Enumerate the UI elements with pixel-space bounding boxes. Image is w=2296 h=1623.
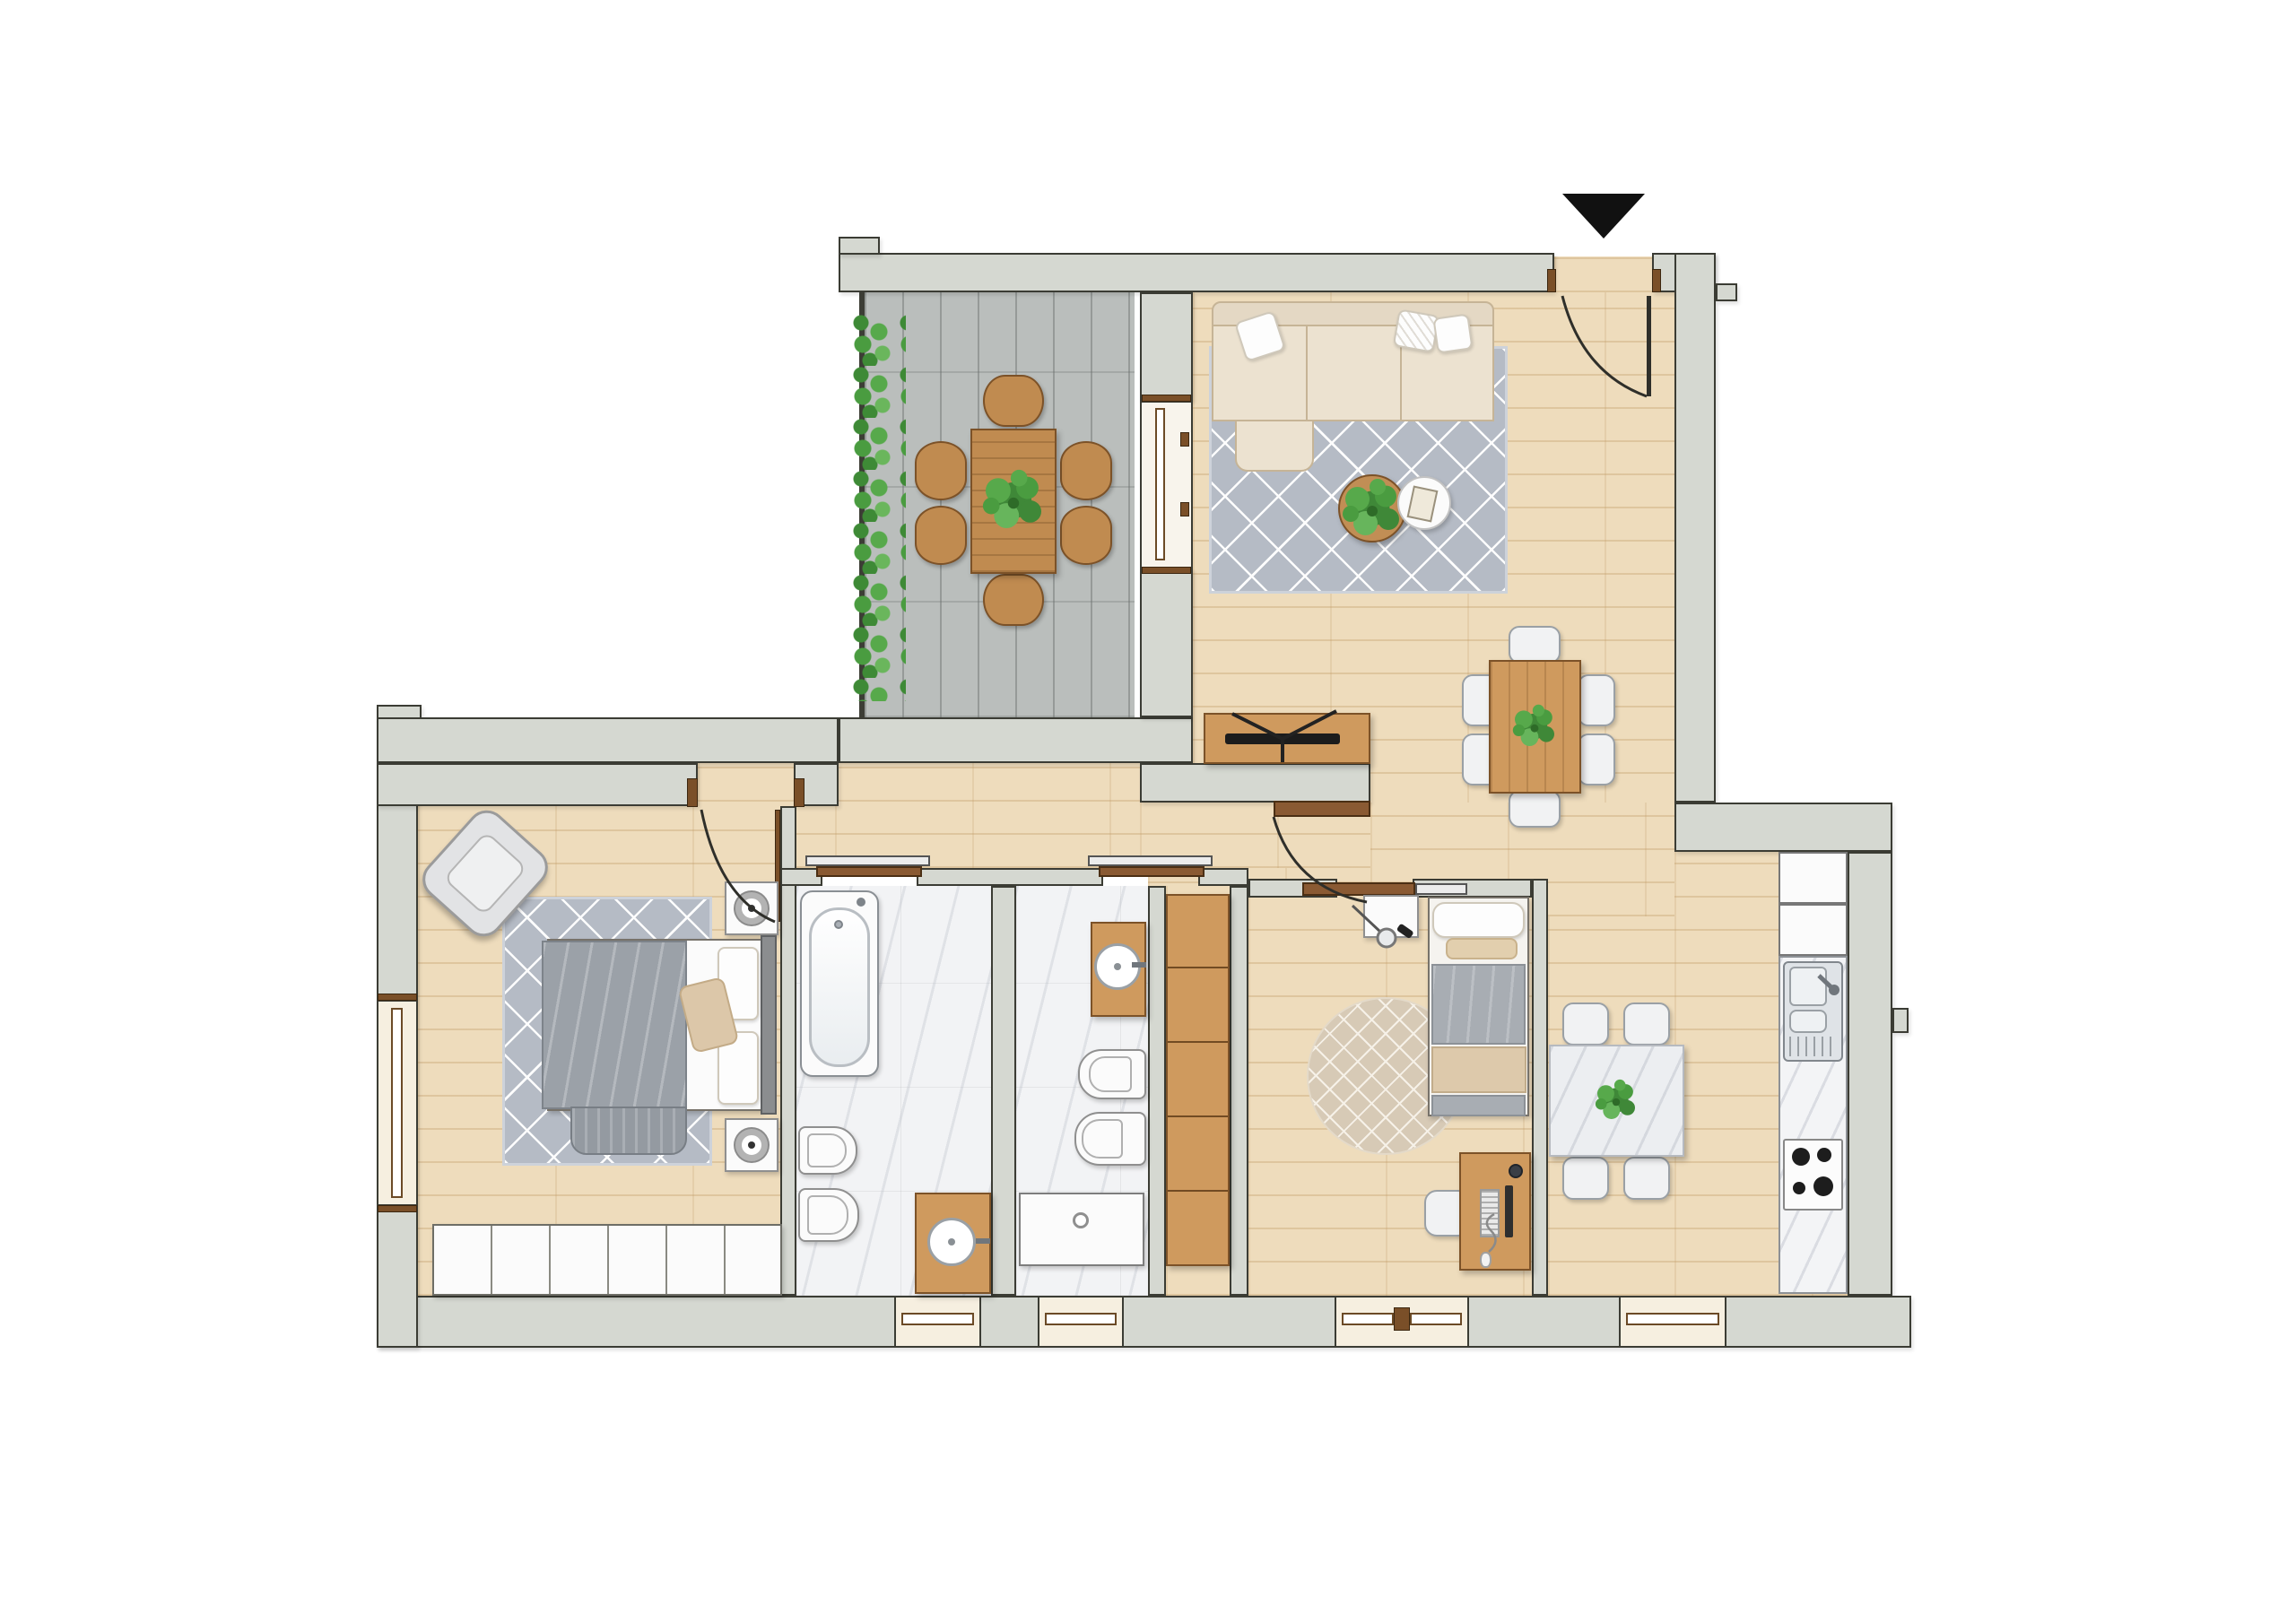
window-kids-glazing-right xyxy=(1410,1313,1462,1325)
kitchen-hob xyxy=(1783,1139,1843,1211)
bedroom-door-jamb-left xyxy=(687,778,698,807)
bed-headboard xyxy=(761,935,777,1115)
entrance-threshold-floor xyxy=(1554,256,1652,292)
kitchen-tall-cabinet-1 xyxy=(1779,852,1848,904)
terrace-chair-right-1 xyxy=(1060,441,1112,500)
wall-kids-east xyxy=(1532,879,1548,1296)
bathroom1-sliding-door xyxy=(816,866,922,877)
nightstand-top-lamp xyxy=(735,892,768,924)
hallway-door-open-leaf xyxy=(1274,801,1370,817)
hob-burner-2 xyxy=(1817,1148,1831,1162)
terrace-chair-top xyxy=(983,375,1044,427)
dining-table xyxy=(1489,660,1581,794)
terrace-chair-right-2 xyxy=(1060,506,1112,565)
terrace-sliding-door-jamb-top xyxy=(1142,395,1191,402)
wall-top-left-notch xyxy=(839,237,880,255)
wall-corridor-south-c xyxy=(1198,868,1248,886)
wall-step-kitchen-north xyxy=(1674,803,1892,852)
kitchen-chair-bottom-1 xyxy=(1562,1157,1609,1200)
bedroom-door-jamb-right xyxy=(794,778,804,807)
hallway-wardrobe xyxy=(1166,894,1230,1266)
kitchen-tall-cabinet-2 xyxy=(1779,904,1848,956)
bedroom-wardrobe xyxy=(432,1224,782,1296)
kids-bed-pillow xyxy=(1432,902,1525,938)
kids-bed-pillow-beige xyxy=(1446,938,1518,959)
window-bedroom-west-jamb-top xyxy=(378,994,417,1001)
terrace-chair-left-2 xyxy=(915,506,967,565)
dining-chair-right-2 xyxy=(1578,733,1615,785)
kitchen-chair-top-1 xyxy=(1562,1002,1609,1046)
terrace-sliding-door-handle-1 xyxy=(1180,432,1189,447)
nightstand-bottom-lamp xyxy=(735,1129,768,1161)
dining-chair-top xyxy=(1509,626,1561,664)
kids-room-door-track xyxy=(1415,883,1467,895)
entrance-arrow-icon xyxy=(1562,194,1645,239)
bathtub-drain xyxy=(834,920,843,929)
dining-chair-bottom xyxy=(1509,790,1561,828)
desk-chair xyxy=(1424,1190,1462,1237)
wall-top-terrace xyxy=(839,253,1554,292)
desk-mouse xyxy=(1480,1252,1492,1268)
coffee-table-round-wood xyxy=(1338,474,1406,542)
sofa-seam-1 xyxy=(1306,325,1308,421)
tv xyxy=(1225,733,1340,744)
entrance-door-jamb-left xyxy=(1547,269,1556,292)
wall-bathroom2-east xyxy=(1148,886,1166,1296)
bathroom1-door-track xyxy=(805,855,930,866)
kitchen-chair-bottom-2 xyxy=(1623,1157,1670,1200)
wall-pilaster-kitchen xyxy=(1892,1008,1909,1033)
entrance-door-panel xyxy=(1647,296,1651,396)
bed-blanket-drape xyxy=(570,1107,687,1155)
kitchen-sink-basin-large xyxy=(1789,967,1827,1006)
wall-pilaster-entrance xyxy=(1716,283,1737,301)
wall-bedroom-north-outer xyxy=(377,717,839,763)
bathroom2-door-track xyxy=(1088,855,1213,866)
window-bathroom2-glazing xyxy=(1045,1313,1117,1325)
desk-monitor xyxy=(1505,1185,1513,1237)
wall-kids-west xyxy=(1230,886,1248,1296)
bathroom2-bidet-bowl xyxy=(1089,1056,1132,1092)
wall-right-kitchen xyxy=(1848,852,1892,1296)
hob-burner-1 xyxy=(1792,1148,1810,1166)
hob-burner-3 xyxy=(1793,1182,1805,1194)
window-kids-glazing-left xyxy=(1342,1313,1394,1325)
wall-corridor-south-b xyxy=(917,868,1103,886)
kitchen-table-marble xyxy=(1549,1045,1684,1157)
hob-burner-4 xyxy=(1813,1176,1833,1196)
kids-bed-footer-gray xyxy=(1431,1095,1526,1116)
bed-blanket-gray xyxy=(542,941,687,1109)
washing-machine xyxy=(1019,1193,1144,1266)
window-kids-mullion xyxy=(1394,1307,1410,1331)
bathroom1-bidet-bowl xyxy=(807,1133,847,1167)
terrace-sliding-door-jamb-bottom xyxy=(1142,567,1191,574)
terrace-sliding-door-handle-2 xyxy=(1180,502,1189,516)
kitchen-sink-drainboard xyxy=(1789,1037,1834,1056)
entrance-door-jamb-right xyxy=(1652,269,1661,292)
terrace-chair-left-1 xyxy=(915,441,967,500)
kids-bed-blanket-beige xyxy=(1431,1046,1526,1093)
desk-speaker xyxy=(1509,1164,1523,1178)
terrace-sliding-door xyxy=(1140,401,1193,568)
bathroom2-toilet-bowl xyxy=(1082,1119,1123,1159)
sofa-pillow-3 xyxy=(1432,313,1473,353)
kitchen-sink-basin-small xyxy=(1789,1010,1827,1033)
floor-plan xyxy=(0,0,2296,1623)
desk-keyboard xyxy=(1480,1189,1500,1237)
window-bedroom-west-glazing xyxy=(391,1008,403,1198)
window-bathroom1-glazing xyxy=(901,1313,974,1325)
terrace-chair-bottom xyxy=(983,574,1044,626)
bathroom1-sink-drain xyxy=(948,1238,955,1245)
kids-nightstand xyxy=(1363,895,1419,938)
kids-room-sliding-door xyxy=(1302,882,1415,896)
wall-terrace-east-upper xyxy=(1140,292,1193,401)
window-bedroom-west-jamb-bottom xyxy=(378,1205,417,1212)
wall-bedroom-north-inner-west xyxy=(377,763,698,806)
wall-terrace-south xyxy=(839,717,1193,763)
hedge-plants xyxy=(850,314,906,701)
washing-machine-knob xyxy=(1073,1212,1089,1228)
terrace-dining-table xyxy=(970,429,1057,574)
kitchen-chair-top-2 xyxy=(1623,1002,1670,1046)
terrace-sliding-door-glazing xyxy=(1155,408,1165,560)
wall-right-living xyxy=(1674,253,1716,803)
wall-between-bathrooms xyxy=(991,886,1016,1296)
bathroom2-sliding-door xyxy=(1099,866,1205,877)
bathtub-basin xyxy=(809,907,870,1067)
wall-hall-tv xyxy=(1140,763,1370,803)
bathroom2-sink-drain xyxy=(1114,963,1121,970)
dining-chair-right-1 xyxy=(1578,674,1615,726)
sofa-pillow-2 xyxy=(1393,308,1440,352)
kids-bed-blanket-gray xyxy=(1431,964,1526,1045)
wall-terrace-east-lower xyxy=(1140,568,1193,717)
window-kitchen-glazing xyxy=(1626,1313,1719,1325)
bathroom1-toilet-bowl xyxy=(807,1195,848,1235)
